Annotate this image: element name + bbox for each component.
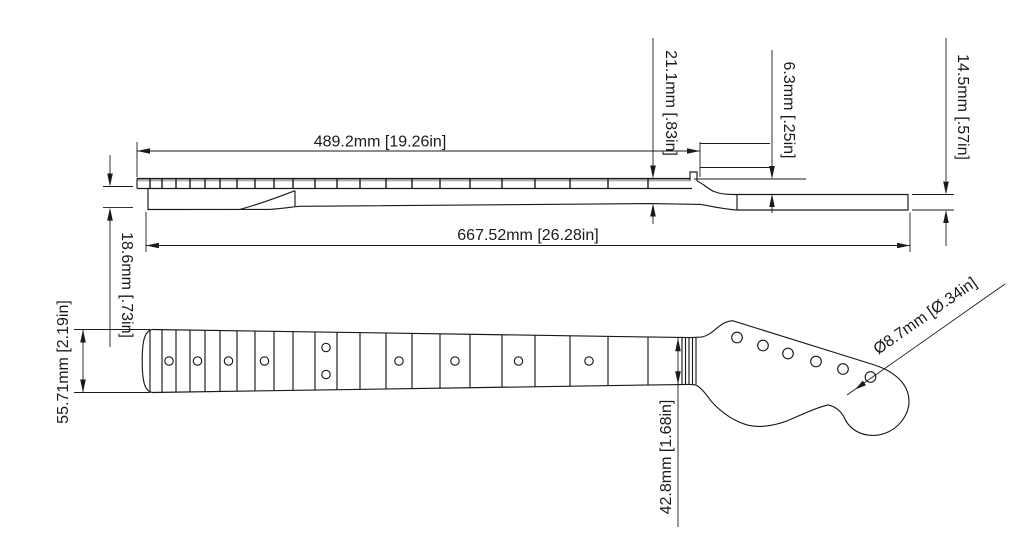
dim-fretboard-length: 489.2mm [19.26in] xyxy=(137,134,700,178)
arrowhead xyxy=(855,381,866,390)
arrowhead xyxy=(107,208,113,221)
heel-transition-line xyxy=(240,191,295,210)
dim-headstock-thickness: 14.5mm [.57in] xyxy=(912,38,971,246)
arrowhead xyxy=(146,243,159,249)
dim-nut-width: 42.8mm [1.68in] xyxy=(658,338,681,527)
tuner-holes xyxy=(732,332,876,382)
dim-overall-length: 667.52mm [26.28in] xyxy=(146,212,910,252)
arrowhead xyxy=(137,148,150,154)
leader-line xyxy=(847,284,1005,395)
inlay-dot xyxy=(585,357,593,365)
arrowhead xyxy=(897,243,910,249)
dim-neck-shaft-thickness-label: 18.6mm [.73in] xyxy=(118,232,135,338)
inlay-dot xyxy=(165,357,173,365)
tuner-hole xyxy=(811,356,822,367)
dim-headstock-face-drop-label: 6.3mm [.25in] xyxy=(780,62,797,159)
tuner-hole xyxy=(838,364,849,375)
arrowhead xyxy=(650,166,656,179)
inlay-dot xyxy=(224,357,232,365)
side-view xyxy=(137,172,908,210)
dim-thickness-at-nut: 21.1mm [.83in] xyxy=(650,38,679,224)
nut-side-profile xyxy=(690,172,697,181)
arrowhead xyxy=(675,371,681,384)
arrowhead xyxy=(943,182,949,195)
inlay-dot xyxy=(451,357,459,365)
fretboard-treble-edge xyxy=(152,384,690,392)
tuner-hole xyxy=(783,348,794,359)
tuner-hole xyxy=(732,332,743,343)
inlay-dot xyxy=(260,357,268,365)
neck-side-outline xyxy=(148,181,908,210)
arrowhead xyxy=(687,148,700,154)
tuner-hole xyxy=(758,340,769,351)
arrowhead xyxy=(769,194,775,207)
inlay-dot xyxy=(514,357,522,365)
dim-neck-shaft-thickness: 18.6mm [.73in] xyxy=(103,155,135,347)
inlay-dot xyxy=(395,357,403,365)
fretboard-bass-edge xyxy=(152,330,690,338)
arrowhead xyxy=(769,166,775,179)
dim-nut-width-label: 42.8mm [1.68in] xyxy=(658,400,675,515)
dim-thickness-at-nut-label: 21.1mm [.83in] xyxy=(662,50,679,156)
dim-fretboard-length-label: 489.2mm [19.26in] xyxy=(314,134,447,151)
arrowhead xyxy=(80,330,86,343)
arrowhead xyxy=(943,210,949,223)
inlay-dot xyxy=(193,357,201,365)
nut-lines xyxy=(682,337,696,384)
dim-headstock-thickness-label: 14.5mm [.57in] xyxy=(954,54,971,160)
arrowhead xyxy=(675,338,681,351)
dim-tuner-hole-diameter-label: Ø8.7mm [Ø.34in] xyxy=(871,274,981,358)
inlay-dot xyxy=(322,370,330,378)
arrowhead xyxy=(107,174,113,187)
arrowhead xyxy=(650,204,656,217)
arrowhead xyxy=(80,380,86,393)
plan-view xyxy=(142,321,909,436)
dim-heel-width-label: 55.71mm [2.19in] xyxy=(55,300,72,424)
guitar-neck-technical-drawing: 489.2mm [19.26in] 667.52mm [26.28in] 21.… xyxy=(0,0,1024,552)
dim-overall-length-label: 667.52mm [26.28in] xyxy=(457,227,598,244)
dim-headstock-face-drop: 6.3mm [.25in] xyxy=(694,50,806,213)
inlay-dots xyxy=(165,343,593,378)
dim-tuner-hole-diameter: Ø8.7mm [Ø.34in] xyxy=(847,274,1005,395)
inlay-dot xyxy=(322,343,330,351)
